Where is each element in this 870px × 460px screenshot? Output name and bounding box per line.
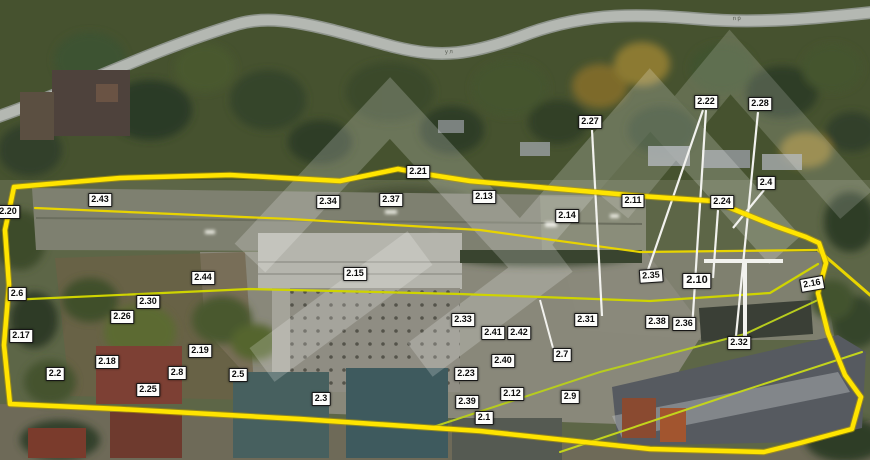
parcel-label: 2.2 xyxy=(46,367,65,381)
parcel-label: 2.1 xyxy=(475,411,494,425)
parcel-label: 2.4 xyxy=(757,176,776,190)
parcel-labels-layer: 2.202.432.212.342.372.132.142.112.242.27… xyxy=(0,0,870,460)
parcel-label: 2.30 xyxy=(136,295,160,309)
parcel-label: 2.24 xyxy=(710,195,734,209)
parcel-label: 2.3 xyxy=(312,392,331,406)
parcel-label: 2.41 xyxy=(481,326,505,340)
parcel-label: 2.26 xyxy=(110,310,134,324)
parcel-label: 2.37 xyxy=(379,193,403,207)
parcel-label: 2.38 xyxy=(645,315,669,329)
parcel-label: 2.42 xyxy=(507,326,531,340)
parcel-label: 2.5 xyxy=(229,368,248,382)
parcel-label: 2.22 xyxy=(694,95,718,109)
parcel-label: 2.19 xyxy=(188,344,212,358)
parcel-label: 2.34 xyxy=(316,195,340,209)
parcel-label: 2.23 xyxy=(454,367,478,381)
parcel-label: 2.18 xyxy=(95,355,119,369)
parcel-label: 2.17 xyxy=(9,329,33,343)
parcel-label: 2.36 xyxy=(672,317,696,331)
parcel-label: 2.43 xyxy=(88,193,112,207)
parcel-label: 2.13 xyxy=(472,190,496,204)
parcel-label: 2.32 xyxy=(727,336,751,350)
parcel-label: 2.31 xyxy=(574,313,598,327)
parcel-label: 2.8 xyxy=(168,366,187,380)
parcel-label: 2.25 xyxy=(136,383,160,397)
parcel-label: 2.21 xyxy=(406,165,430,179)
site-plan-map: ская ул ул пр xyxy=(0,0,870,460)
parcel-label: 2.9 xyxy=(561,390,580,404)
parcel-label: 2.15 xyxy=(343,267,367,281)
parcel-label: 2.7 xyxy=(553,348,572,362)
parcel-label: 2.6 xyxy=(8,287,27,301)
parcel-label: 2.28 xyxy=(748,97,772,111)
parcel-label: 2.12 xyxy=(500,387,524,401)
parcel-label: 2.44 xyxy=(191,271,215,285)
parcel-label: 2.10 xyxy=(682,273,711,289)
parcel-label: 2.35 xyxy=(639,268,663,284)
parcel-label: 2.11 xyxy=(621,194,644,208)
parcel-label: 2.14 xyxy=(555,209,579,223)
parcel-label: 2.40 xyxy=(491,354,515,368)
parcel-label: 2.39 xyxy=(455,395,479,409)
parcel-label: 2.16 xyxy=(799,275,825,293)
parcel-label: 2.33 xyxy=(451,313,475,327)
parcel-label: 2.27 xyxy=(578,115,602,129)
parcel-label: 2.20 xyxy=(0,205,20,219)
